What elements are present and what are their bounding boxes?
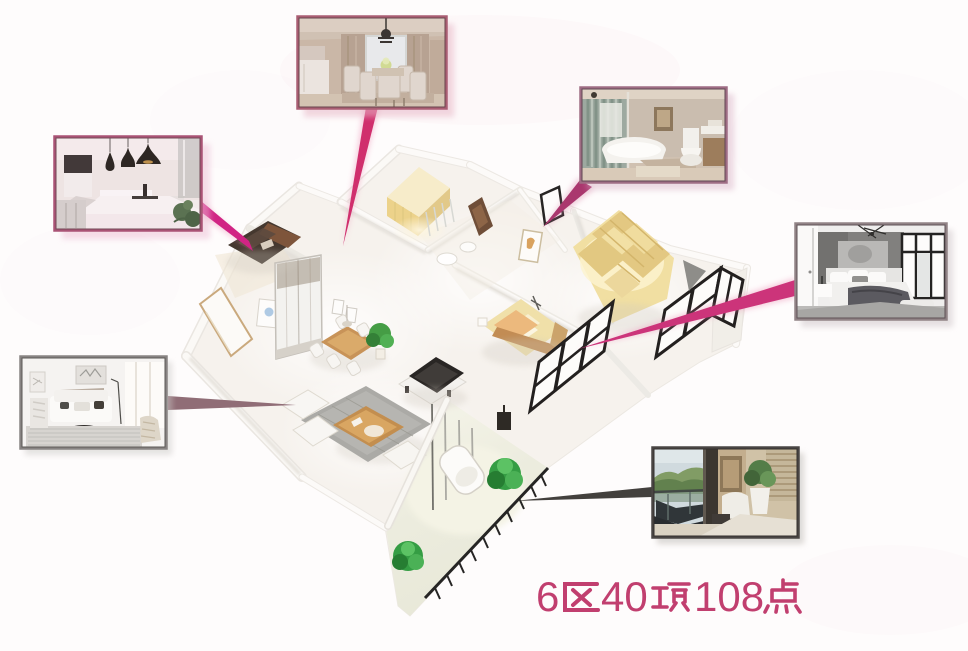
svg-text:6: 6 — [536, 573, 559, 620]
svg-text:108: 108 — [694, 573, 764, 620]
svg-text:40: 40 — [601, 573, 648, 620]
